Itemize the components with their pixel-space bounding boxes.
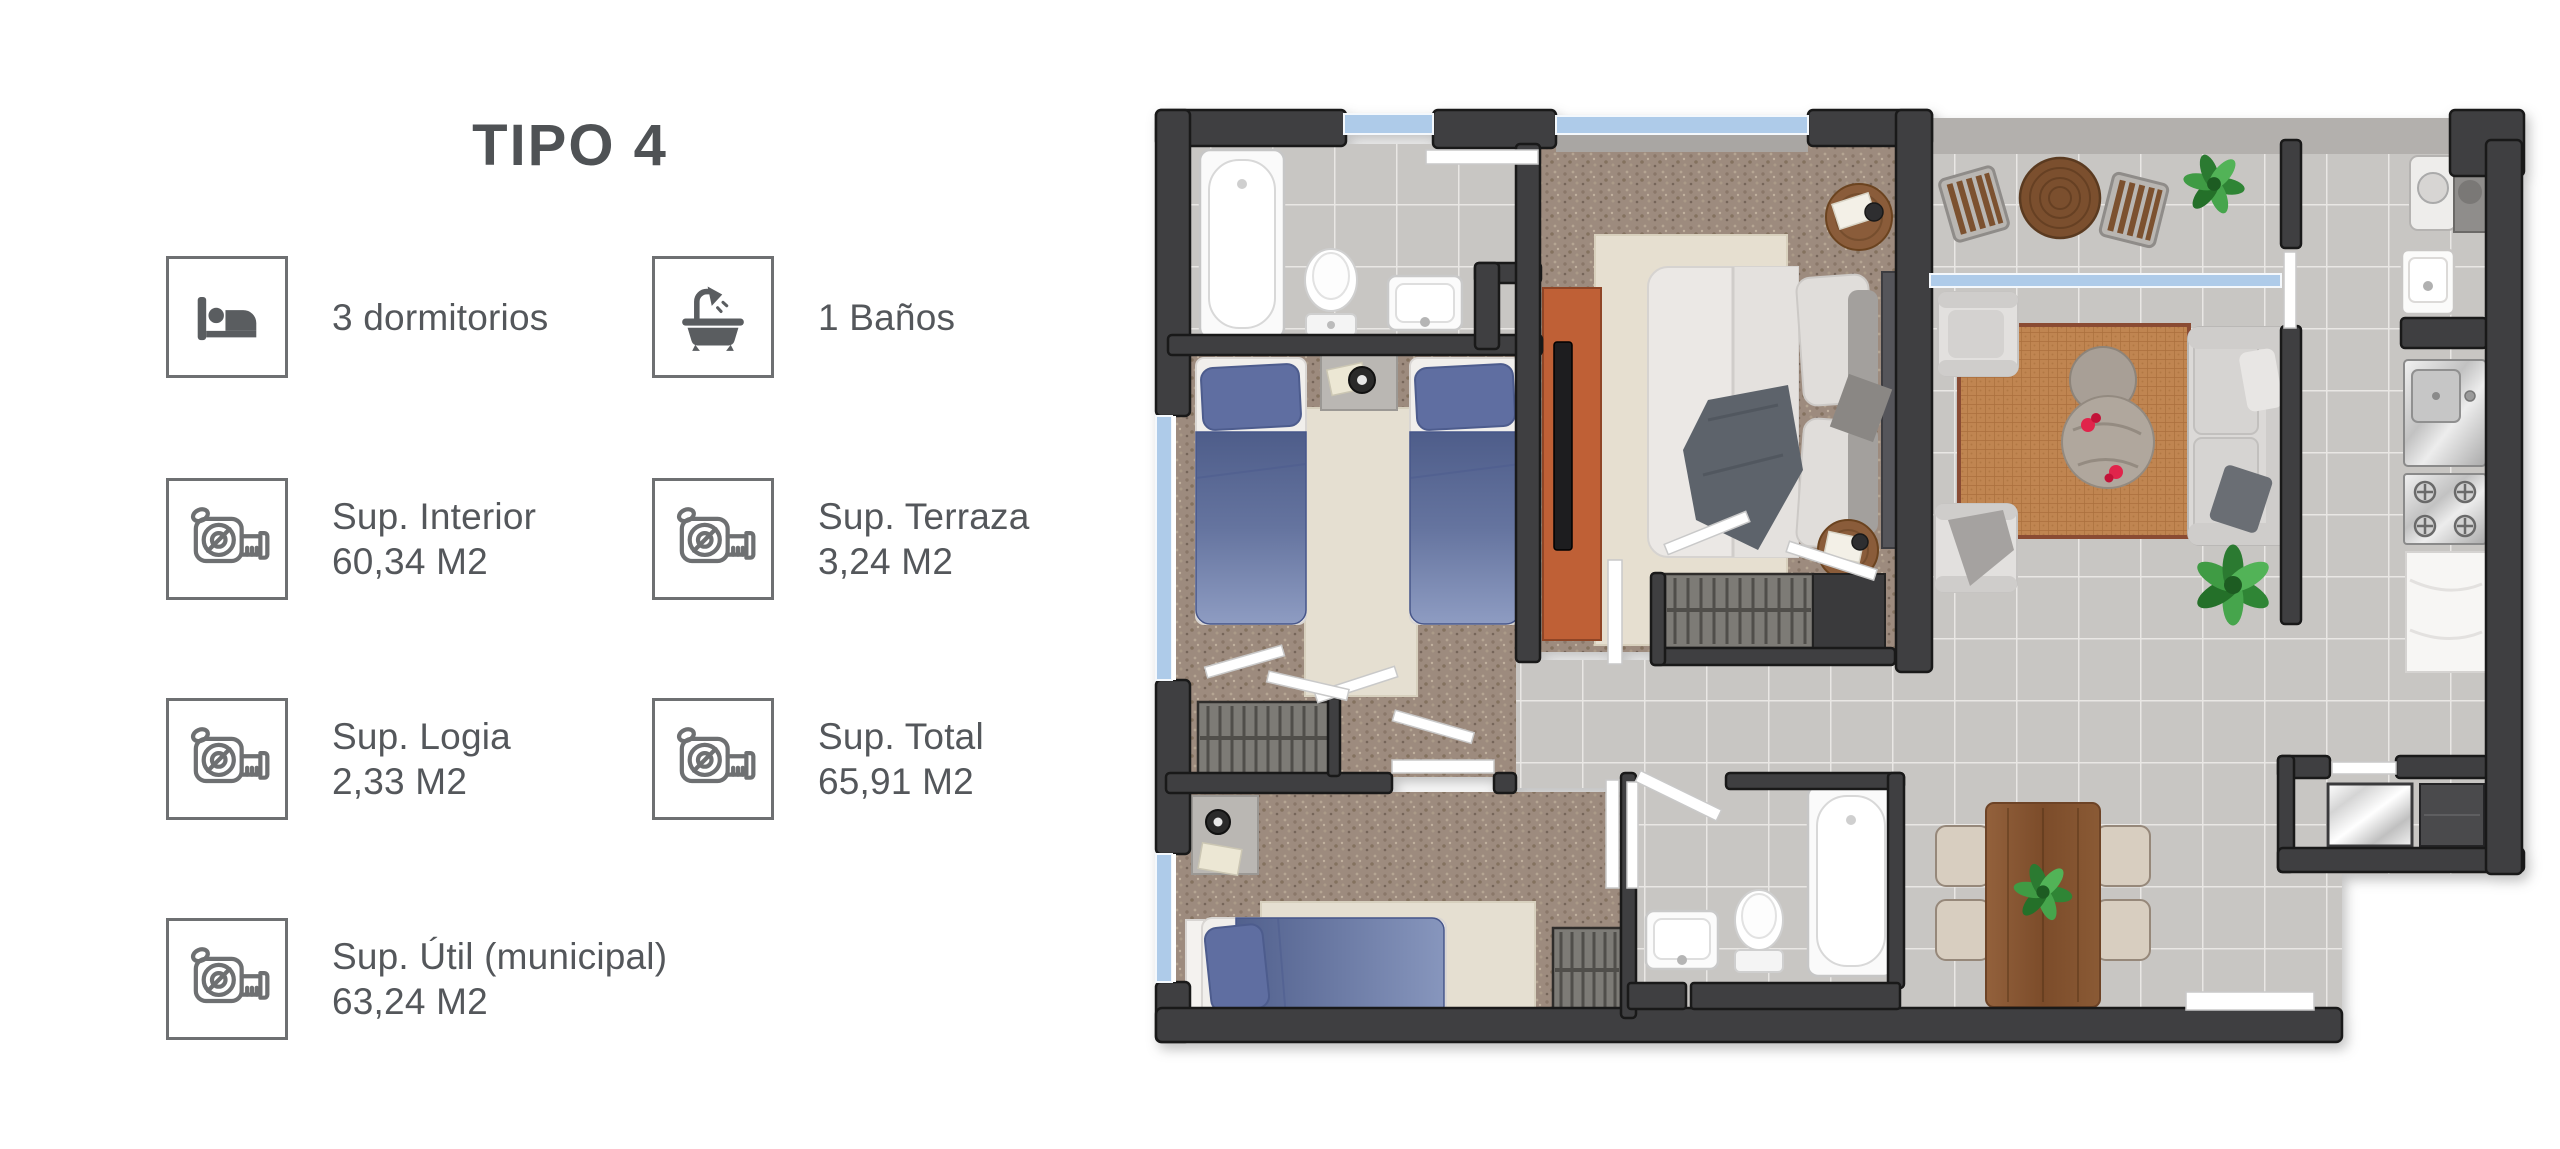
- stove: [2404, 474, 2486, 544]
- double-bed: [1648, 267, 1902, 557]
- spec-label: Sup. Útil (municipal): [332, 934, 667, 979]
- toilet: [1735, 890, 1783, 972]
- icon-frame: [652, 478, 774, 600]
- wardrobe: [1198, 702, 1330, 776]
- spec-sup-interior: Sup. Interior 60,34 M2: [166, 478, 536, 600]
- tape-measure-icon: [669, 495, 757, 583]
- spec-label: 1 Baños: [818, 295, 955, 340]
- spec-bedrooms: 3 dormitorios: [166, 256, 548, 378]
- kitchen-sink: [2404, 360, 2486, 466]
- spec-value: 2,33 M2: [332, 759, 511, 804]
- spec-value: 3,24 M2: [818, 539, 1030, 584]
- terrace-table: [2020, 158, 2100, 238]
- window-sill: [1556, 134, 1808, 152]
- armchair: [1935, 504, 2017, 592]
- spec-sup-logia: Sup. Logia 2,33 M2: [166, 698, 511, 820]
- spec-label: Sup. Logia: [332, 714, 511, 759]
- spec-value: 65,91 M2: [818, 759, 984, 804]
- entry-mat: [2186, 992, 2314, 1010]
- page: TIPO 4 3 dormitorios 1 Baños Sup. Interi…: [0, 0, 2560, 1149]
- wardrobe: [1665, 574, 1885, 648]
- tape-measure-icon: [183, 495, 271, 583]
- double-bed: [1186, 918, 1446, 1018]
- counter: [2406, 552, 2486, 672]
- tape-measure-icon: [183, 715, 271, 803]
- room-logia: [2328, 784, 2484, 846]
- washing-machine: [2328, 784, 2412, 846]
- spec-label: Sup. Interior: [332, 494, 536, 539]
- nightstand: [1321, 350, 1397, 410]
- sink: [1388, 276, 1462, 330]
- dining-chair: [1936, 900, 1990, 960]
- icon-frame: [166, 256, 288, 378]
- spec-sup-util: Sup. Útil (municipal) 63,24 M2: [166, 918, 667, 1040]
- nightstand: [1192, 796, 1258, 875]
- spec-value: 60,34 M2: [332, 539, 536, 584]
- floorplan-image: [1148, 80, 2540, 1060]
- page-title: TIPO 4: [150, 112, 990, 179]
- round-side-table: [1826, 184, 1892, 250]
- icon-frame: [166, 478, 288, 600]
- spec-sup-total: Sup. Total 65,91 M2: [652, 698, 984, 820]
- icon-frame: [166, 698, 288, 820]
- spec-value: 63,24 M2: [332, 979, 667, 1024]
- sink: [1646, 911, 1718, 969]
- spec-label: Sup. Total: [818, 714, 984, 759]
- spec-sup-terraza: Sup. Terraza 3,24 M2: [652, 478, 1030, 600]
- single-bed: [1410, 358, 1520, 624]
- terrace-edge-band: [1930, 118, 2454, 154]
- bath-icon: [676, 280, 750, 354]
- sink: [2402, 250, 2454, 314]
- icon-frame: [652, 256, 774, 378]
- spec-label: 3 dormitorios: [332, 295, 548, 340]
- single-bed: [1196, 358, 1306, 624]
- spec-label: Sup. Terraza: [818, 494, 1030, 539]
- bathtub: [1200, 150, 1284, 338]
- room-kitchen: [2402, 152, 2486, 672]
- icon-frame: [652, 698, 774, 820]
- dresser-tv: [1543, 288, 1601, 640]
- bed-icon: [190, 280, 264, 354]
- tape-measure-icon: [669, 715, 757, 803]
- tape-measure-icon: [183, 935, 271, 1023]
- toilet: [1305, 249, 1357, 336]
- dining-chair: [1936, 826, 1990, 886]
- dining-chair: [2096, 900, 2150, 960]
- area-rug: [1305, 408, 1417, 696]
- armchair: [1938, 292, 2018, 376]
- wardrobe: [1553, 928, 1621, 1012]
- icon-frame: [166, 918, 288, 1040]
- spec-bathrooms: 1 Baños: [652, 256, 955, 378]
- bathtub: [1808, 786, 1894, 976]
- dining-chair: [2096, 826, 2150, 886]
